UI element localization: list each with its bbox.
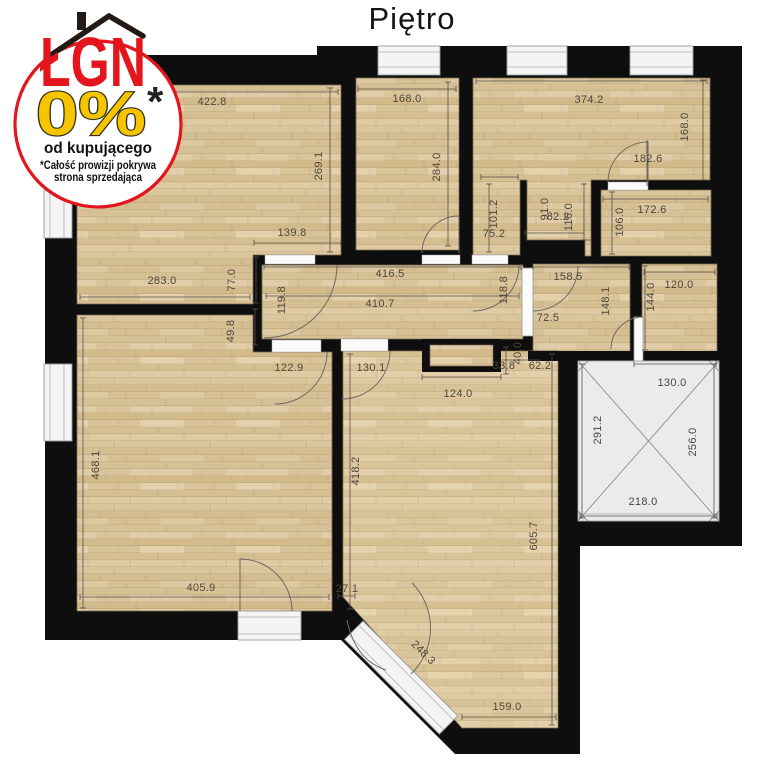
- svg-text:od kupującego: od kupującego: [44, 140, 152, 157]
- svg-text:168.0: 168.0: [392, 93, 421, 105]
- svg-text:416.5: 416.5: [375, 268, 404, 280]
- svg-text:130.1: 130.1: [356, 362, 385, 374]
- svg-text:122.9: 122.9: [274, 362, 303, 374]
- svg-text:120.0: 120.0: [664, 279, 693, 291]
- svg-text:256.0: 256.0: [687, 427, 699, 456]
- svg-text:284.0: 284.0: [431, 152, 443, 181]
- svg-text:strona sprzedająca: strona sprzedająca: [54, 170, 142, 184]
- svg-text:75.2: 75.2: [483, 228, 506, 240]
- svg-text:144.0: 144.0: [645, 282, 657, 311]
- svg-text:124.0: 124.0: [443, 388, 472, 400]
- svg-text:62.2: 62.2: [529, 360, 552, 372]
- svg-text:106.0: 106.0: [614, 207, 626, 236]
- svg-text:168.0: 168.0: [679, 112, 691, 141]
- svg-text:422.8: 422.8: [197, 96, 226, 108]
- svg-text:468.1: 468.1: [90, 450, 102, 479]
- svg-text:40.0: 40.0: [512, 342, 524, 365]
- svg-text:Piętro: Piętro: [369, 1, 456, 36]
- svg-text:172.6: 172.6: [637, 204, 666, 216]
- svg-text:159.0: 159.0: [492, 701, 521, 713]
- svg-text:116.0: 116.0: [563, 203, 575, 231]
- svg-text:218.0: 218.0: [628, 496, 657, 508]
- svg-text:0%: 0%: [36, 80, 146, 149]
- svg-text:418.2: 418.2: [350, 456, 362, 485]
- svg-text:269.1: 269.1: [313, 151, 325, 180]
- svg-text:119.8: 119.8: [276, 286, 288, 314]
- svg-text:130.0: 130.0: [657, 377, 686, 389]
- svg-text:283.0: 283.0: [147, 275, 176, 287]
- svg-text:101.2: 101.2: [488, 199, 500, 228]
- svg-text:*: *: [147, 78, 164, 125]
- svg-text:139.8: 139.8: [277, 227, 306, 239]
- svg-text:118.8: 118.8: [498, 276, 510, 304]
- svg-text:158.5: 158.5: [553, 271, 582, 283]
- svg-text:182.6: 182.6: [633, 153, 662, 165]
- svg-text:374.2: 374.2: [574, 94, 603, 106]
- svg-text:77.0: 77.0: [226, 269, 238, 292]
- svg-text:148.1: 148.1: [600, 286, 612, 315]
- svg-text:49.8: 49.8: [225, 320, 237, 343]
- svg-text:27.1: 27.1: [336, 583, 359, 595]
- svg-text:605.7: 605.7: [528, 521, 540, 550]
- svg-text:410.7: 410.7: [365, 298, 394, 310]
- svg-text:405.9: 405.9: [186, 582, 215, 594]
- svg-text:72.5: 72.5: [537, 312, 560, 324]
- svg-text:291.2: 291.2: [592, 415, 604, 444]
